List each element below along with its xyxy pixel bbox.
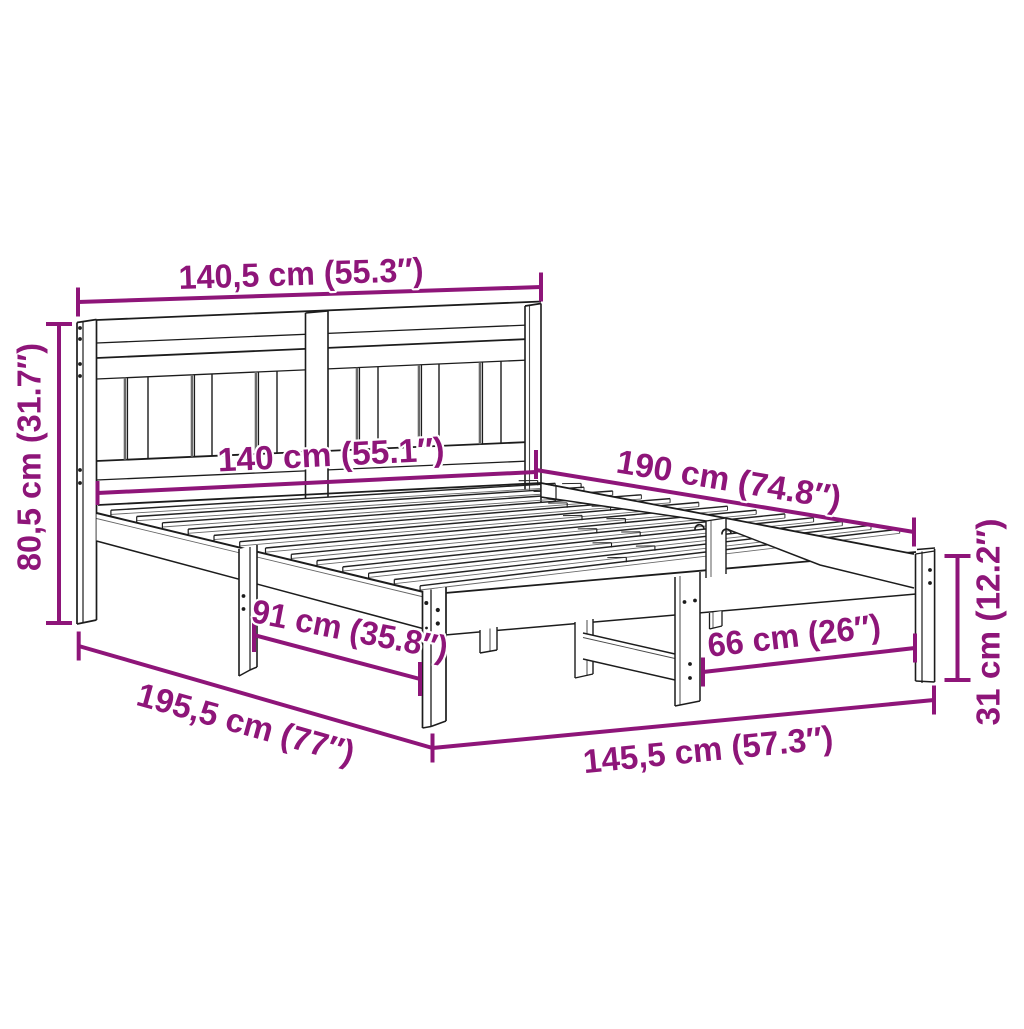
svg-text:80,5 cm (31.7″): 80,5 cm (31.7″) — [12, 343, 49, 571]
svg-text:31 cm (12.2″): 31 cm (12.2″) — [971, 519, 1008, 726]
